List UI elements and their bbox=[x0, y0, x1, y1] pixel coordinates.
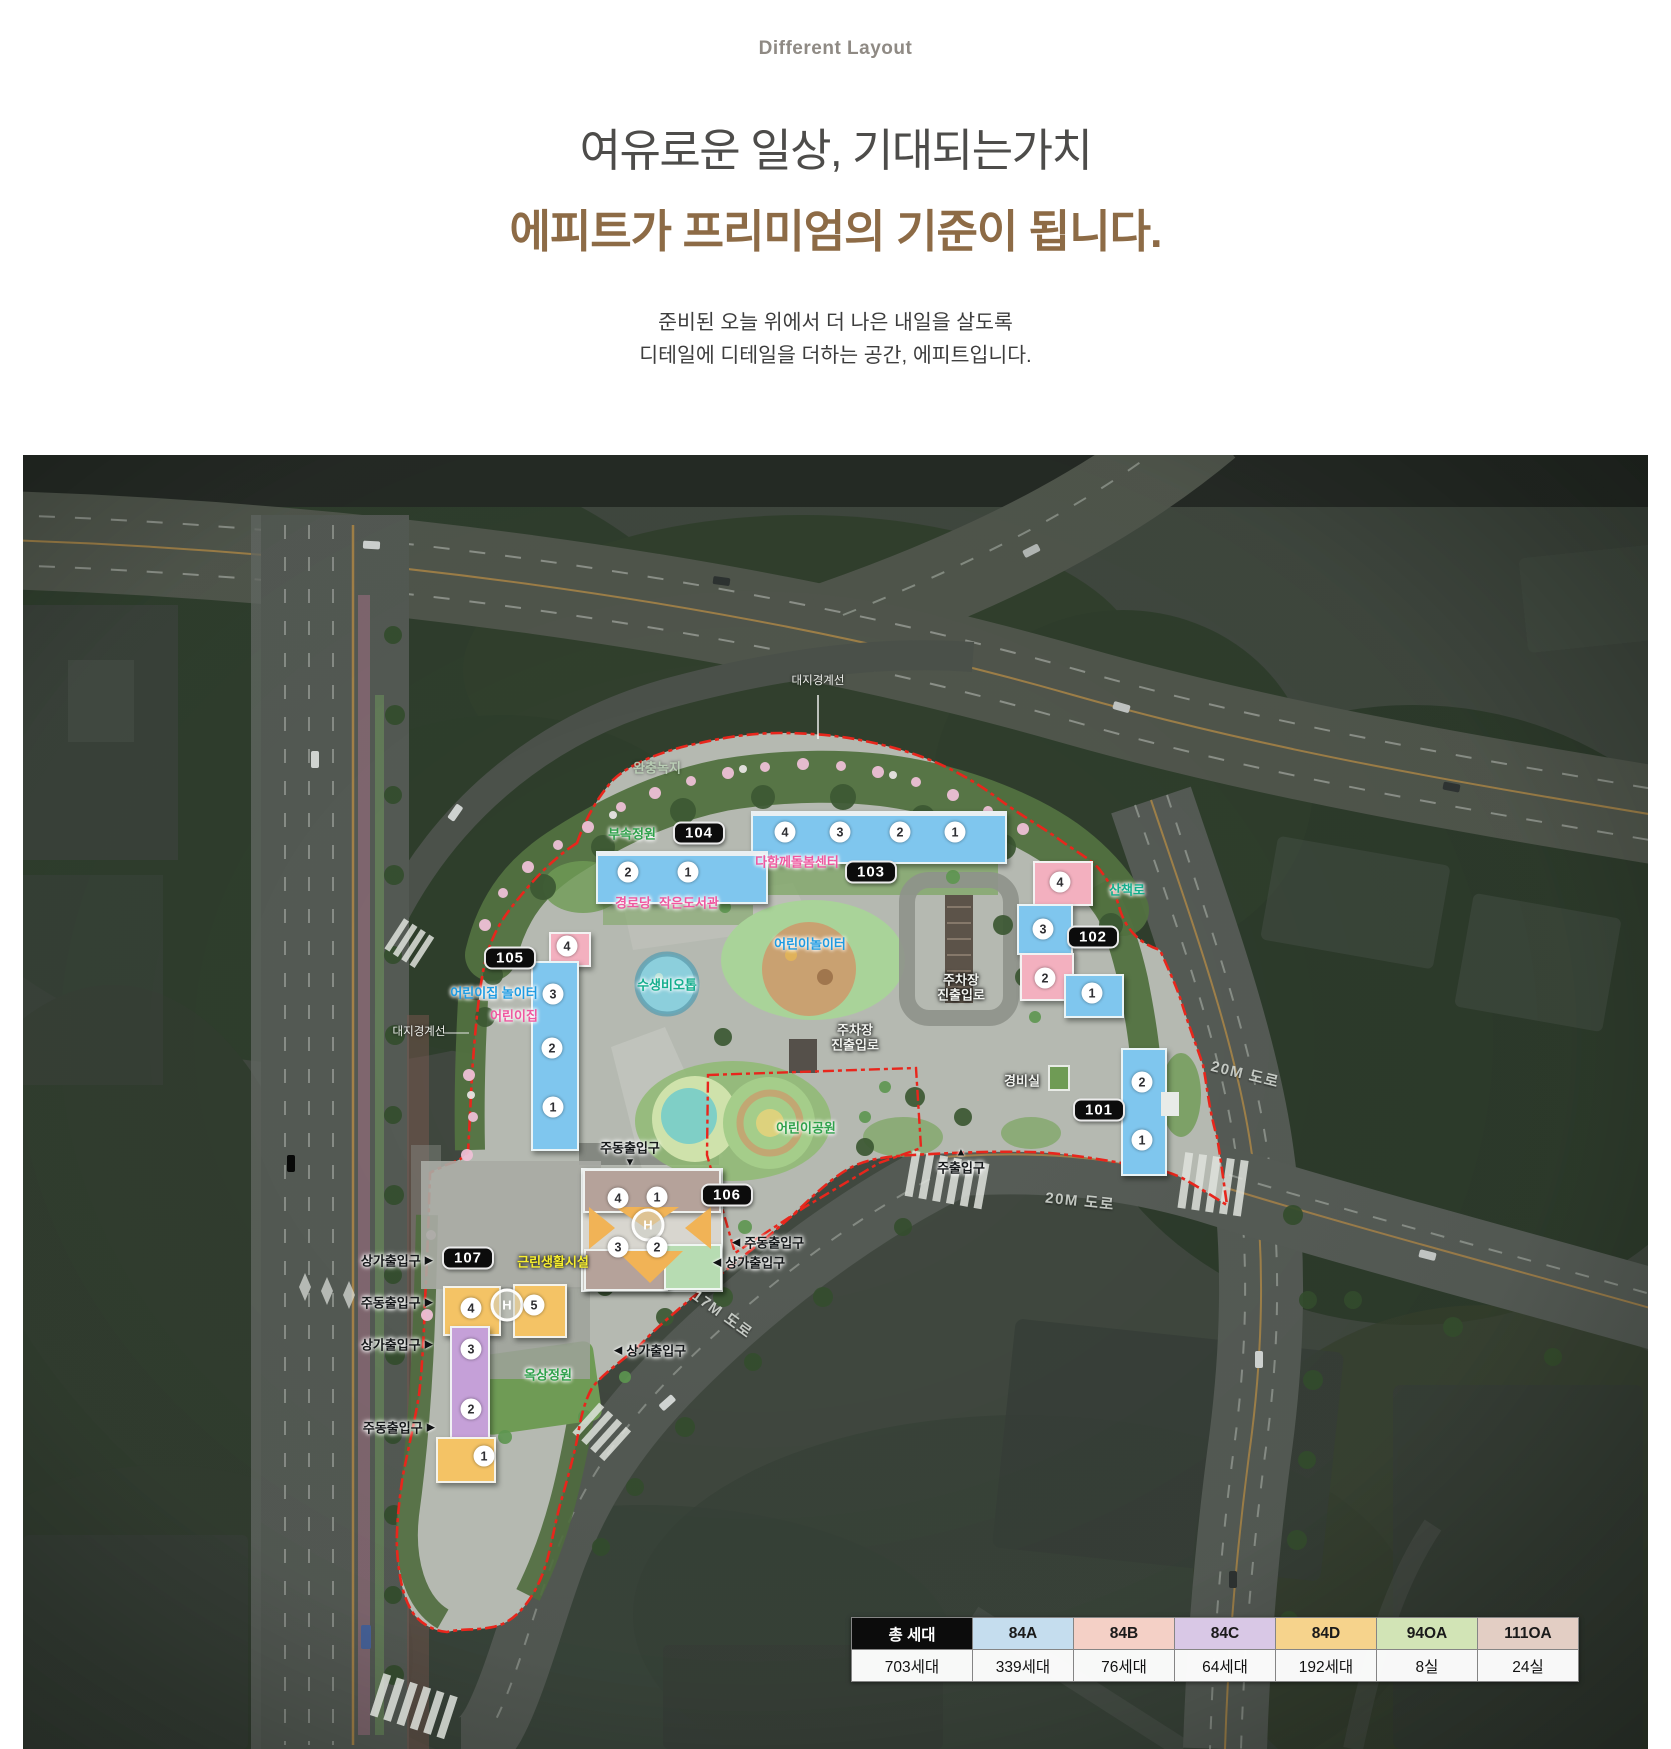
site-plan-illustration bbox=[23, 455, 1648, 1749]
building-badge-101: 101 bbox=[1073, 1099, 1125, 1122]
label-main-entrance-west-2: 주동출입구 ▶ bbox=[363, 1420, 435, 1435]
building-badge-104: 104 bbox=[673, 822, 725, 845]
legend-header-84C: 84C bbox=[1175, 1618, 1276, 1650]
arrow-down-icon: ▼ bbox=[625, 1157, 636, 1170]
unit-circle-102-3: 3 bbox=[1033, 919, 1054, 940]
unit-circle-102-2: 2 bbox=[1035, 968, 1056, 989]
label-main-entrance-106-side: ◀ 주동출입구 bbox=[732, 1235, 804, 1250]
label-text: 상가출입구 bbox=[361, 1337, 421, 1352]
arrow-left-icon: ◀ bbox=[614, 1345, 622, 1358]
legend-header-total: 총 세대 bbox=[852, 1618, 973, 1650]
unit-circle-103-4: 4 bbox=[775, 822, 796, 843]
unit-circle-104-1: 1 bbox=[678, 862, 699, 883]
unit-circle-106-3: 3 bbox=[608, 1237, 629, 1258]
legend-value-84B: 76세대 bbox=[1074, 1650, 1175, 1682]
label-parking-gate-right: 주차장 진출입로 bbox=[937, 973, 985, 1004]
label-aquatic-biotope: 수생비오톱 bbox=[637, 977, 697, 992]
label-shop-entrance-west-2: 상가출입구 ▶ bbox=[361, 1337, 433, 1352]
building-badge-103: 103 bbox=[845, 861, 897, 884]
label-nursery: 어린이집 bbox=[490, 1008, 538, 1023]
legend-value-84D: 192세대 bbox=[1276, 1650, 1377, 1682]
page: { "header": { "eyebrow": "Different Layo… bbox=[0, 0, 1671, 1749]
unit-circle-103-2: 2 bbox=[890, 822, 911, 843]
building-101-annex bbox=[1161, 1092, 1179, 1116]
page-title-line1: 여유로운 일상, 기대되는가치 bbox=[0, 114, 1671, 179]
unit-circle-106-1: 1 bbox=[647, 1187, 668, 1208]
arrow-right-icon: ▶ bbox=[425, 1255, 433, 1268]
legend-value-row: 703세대 339세대 76세대 64세대 192세대 8실 24실 bbox=[852, 1650, 1579, 1682]
unit-circle-105-1: 1 bbox=[543, 1097, 564, 1118]
description-line2: 디테일에 디테일을 더하는 공간, 에피트입니다. bbox=[0, 339, 1671, 372]
legend-value-84A: 339세대 bbox=[973, 1650, 1074, 1682]
label-main-entrance-106: 주동출입구 ▼ bbox=[600, 1140, 660, 1169]
page-title-line2: 에피트가 프리미엄의 기준이 됩니다. bbox=[0, 195, 1671, 260]
label-main-entrance-west-1: 주동출입구 ▶ bbox=[361, 1295, 433, 1310]
legend-header-94OA: 94OA bbox=[1377, 1618, 1478, 1650]
label-site-boundary-top: 대지경계선 bbox=[792, 675, 845, 689]
unit-circle-102-1: 1 bbox=[1082, 983, 1103, 1004]
unit-circle-105-4: 4 bbox=[557, 936, 578, 957]
page-description: 준비된 오늘 위에서 더 나은 내일을 살도록 디테일에 디테일을 더하는 공간… bbox=[0, 306, 1671, 372]
legend-value-84C: 64세대 bbox=[1175, 1650, 1276, 1682]
unit-circle-107-5: 5 bbox=[524, 1295, 545, 1316]
label-children-park: 어린이공원 bbox=[776, 1120, 836, 1135]
arrow-right-icon: ▶ bbox=[427, 1422, 435, 1435]
legend-header-84D: 84D bbox=[1276, 1618, 1377, 1650]
label-shop-entrance-106-side: ◀ 상가출입구 bbox=[713, 1255, 785, 1270]
label-nursery-playground: 어린이집 놀이터 bbox=[450, 985, 537, 1000]
arrow-right-icon: ▶ bbox=[425, 1339, 433, 1352]
legend-header-84A: 84A bbox=[973, 1618, 1074, 1650]
label-text: 상가출입구 bbox=[361, 1253, 421, 1268]
label-main-gate: ▲ 주출입구 bbox=[937, 1146, 985, 1175]
legend-value-111OA: 24실 bbox=[1478, 1650, 1579, 1682]
unit-circle-103-3: 3 bbox=[830, 822, 851, 843]
unit-circle-107-2: 2 bbox=[461, 1399, 482, 1420]
arrow-up-icon: ▲ bbox=[956, 1146, 967, 1159]
unit-circle-105-2: 2 bbox=[542, 1038, 563, 1059]
label-shop-entrance-west-1: 상가출입구 ▶ bbox=[361, 1253, 433, 1268]
label-children-playground: 어린이놀이터 bbox=[774, 936, 846, 951]
unit-type-legend: 총 세대 84A 84B 84C 84D 94OA 111OA 703세대 33… bbox=[851, 1617, 1579, 1682]
legend-header-111OA: 111OA bbox=[1478, 1618, 1579, 1650]
unit-circle-104-2: 2 bbox=[618, 862, 639, 883]
section-eyebrow: Different Layout bbox=[0, 0, 1671, 60]
label-text: 상가출입구 bbox=[626, 1343, 686, 1358]
legend-value-94OA: 8실 bbox=[1377, 1650, 1478, 1682]
label-text: 주출입구 bbox=[937, 1160, 985, 1175]
label-daycare-center: 다함께돌봄센터 bbox=[755, 854, 839, 869]
site-plan-map: H H 4 3 2 1 2 1 4 3 2 1 4 3 2 1 2 1 4 1 … bbox=[23, 455, 1648, 1749]
label-buffer-green: 완충녹지 bbox=[633, 760, 681, 775]
building-badge-106: 106 bbox=[701, 1184, 753, 1207]
building-badge-105: 105 bbox=[484, 947, 536, 970]
label-site-boundary-left: 대지경계선 bbox=[393, 1026, 446, 1040]
arrow-left-icon: ◀ bbox=[732, 1237, 740, 1250]
unit-circle-105-3: 3 bbox=[543, 984, 564, 1005]
label-annex-garden: 부속정원 bbox=[608, 826, 656, 841]
label-text: 주동출입구 bbox=[361, 1295, 421, 1310]
legend-value-total: 703세대 bbox=[852, 1650, 973, 1682]
label-text: 주동출입구 bbox=[744, 1235, 804, 1250]
label-shop-entrance-south: ◀ 상가출입구 bbox=[614, 1343, 686, 1358]
unit-circle-101-1: 1 bbox=[1132, 1130, 1153, 1151]
unit-circle-101-2: 2 bbox=[1132, 1072, 1153, 1093]
unit-circle-106-4: 4 bbox=[608, 1188, 629, 1209]
building-badge-107: 107 bbox=[442, 1247, 494, 1270]
label-text: 주동출입구 bbox=[600, 1140, 660, 1155]
unit-circle-102-4: 4 bbox=[1050, 872, 1071, 893]
unit-circle-107-4: 4 bbox=[461, 1298, 482, 1319]
building-badge-102: 102 bbox=[1067, 926, 1119, 949]
label-parking-gate-center: 주차장 진출입로 bbox=[831, 1023, 879, 1054]
page-header: Different Layout 여유로운 일상, 기대되는가치 에피트가 프리… bbox=[0, 0, 1671, 455]
description-line1: 준비된 오늘 위에서 더 나은 내일을 살도록 bbox=[0, 306, 1671, 339]
arrow-right-icon: ▶ bbox=[425, 1297, 433, 1310]
label-small-library: 작은도서관 bbox=[659, 895, 719, 910]
label-walking-trail: 산책로 bbox=[1109, 882, 1145, 897]
unit-circle-103-1: 1 bbox=[945, 822, 966, 843]
building-107-podium bbox=[421, 1161, 601, 1289]
label-text: 주동출입구 bbox=[363, 1420, 423, 1435]
helipad-icon: H bbox=[491, 1289, 524, 1322]
label-neighborhood-facility: 근린생활시설 bbox=[517, 1254, 589, 1269]
arrow-left-icon: ◀ bbox=[713, 1257, 721, 1270]
legend-header-row: 총 세대 84A 84B 84C 84D 94OA 111OA bbox=[852, 1618, 1579, 1650]
legend-header-84B: 84B bbox=[1074, 1618, 1175, 1650]
label-guard-office: 경비실 bbox=[1004, 1073, 1040, 1088]
unit-circle-107-3: 3 bbox=[461, 1339, 482, 1360]
label-senior-center: 경로당 bbox=[615, 895, 651, 910]
unit-circle-107-1: 1 bbox=[474, 1446, 495, 1467]
label-rooftop-garden: 옥상정원 bbox=[524, 1367, 572, 1382]
label-text: 상가출입구 bbox=[725, 1255, 785, 1270]
unit-circle-106-2: 2 bbox=[647, 1237, 668, 1258]
